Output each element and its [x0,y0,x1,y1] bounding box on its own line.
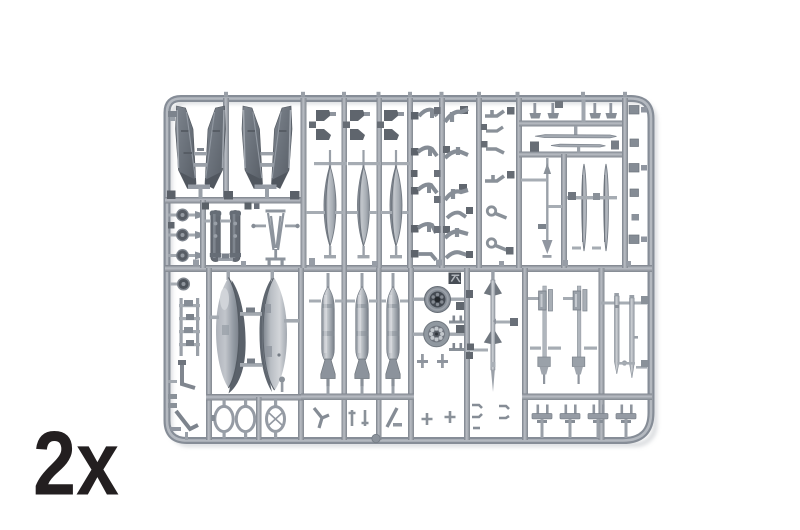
svg-text:2x: 2x [33,413,119,514]
